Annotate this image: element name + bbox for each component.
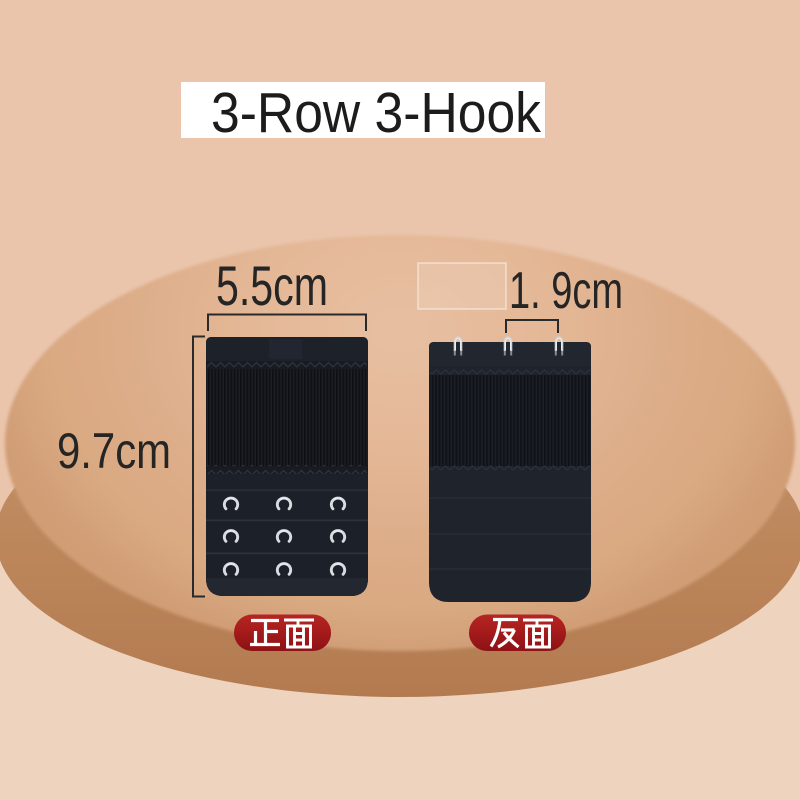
svg-text:3-Row 3-Hook: 3-Row 3-Hook [211, 81, 541, 145]
svg-text:1. 9cm: 1. 9cm [509, 262, 623, 320]
svg-text:5.5cm: 5.5cm [216, 254, 328, 317]
svg-text:9.7cm: 9.7cm [57, 423, 171, 479]
